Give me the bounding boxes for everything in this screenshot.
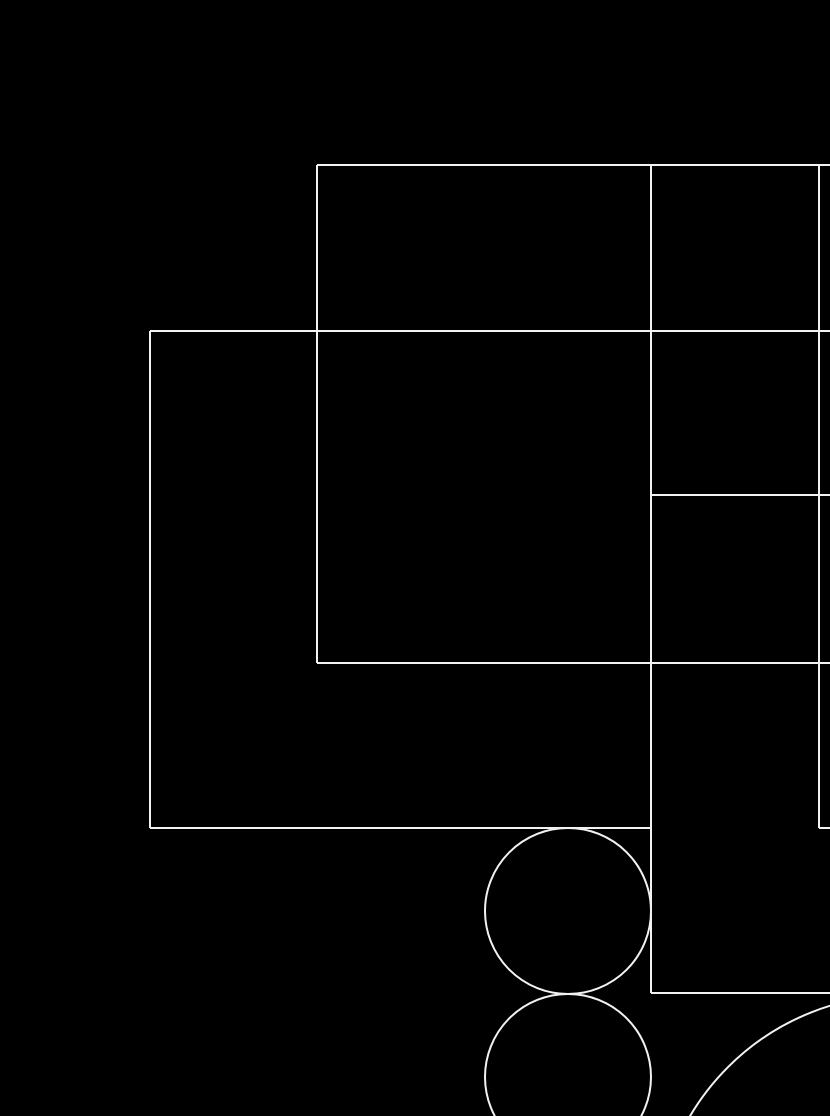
geometric-composition [0,0,830,1116]
arc-bottom-right [656,995,830,1116]
circle-lower [485,994,651,1116]
circle-upper [485,828,651,994]
composition-canvas [0,0,830,1116]
